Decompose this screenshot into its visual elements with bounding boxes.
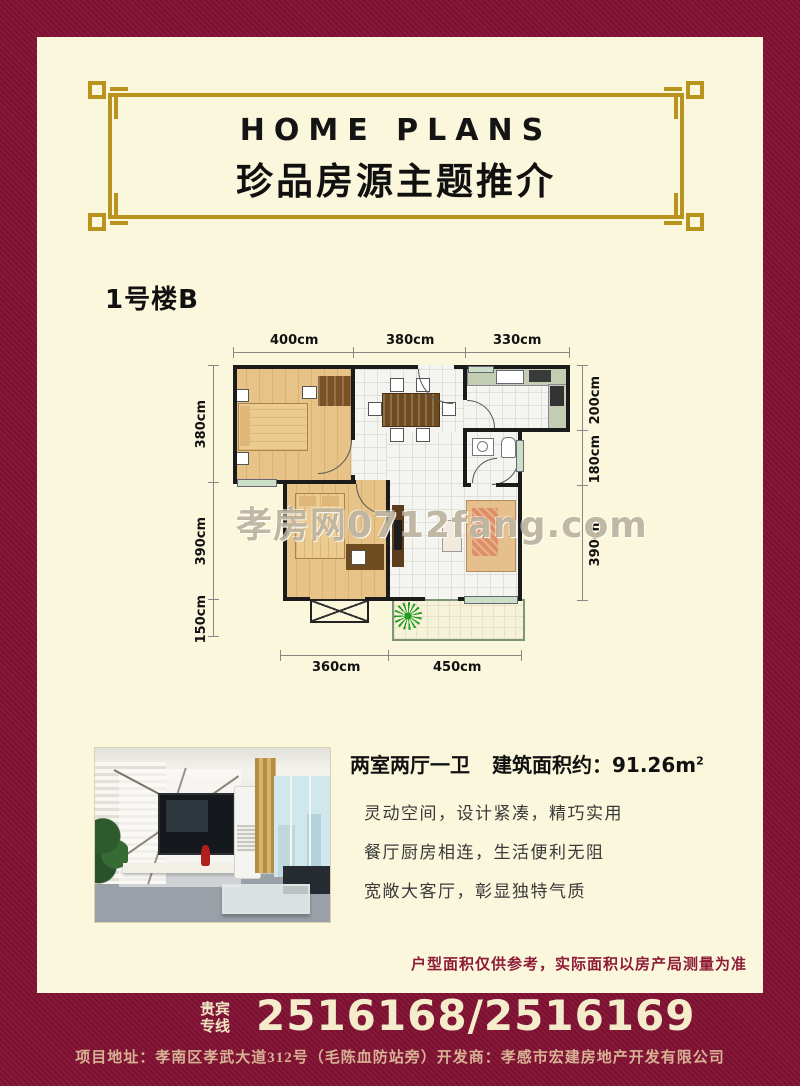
content-panel: HOME PLANS 珍品房源主题推介 1号楼B <box>37 37 763 993</box>
wall <box>351 365 355 440</box>
unit-description: 灵动空间，设计紧凑，精巧实用 餐厅厨房相连，生活便利无阻 宽敞大客厅，彰显独特气… <box>364 795 623 912</box>
wall <box>390 597 425 601</box>
hotline-numbers: 2516168/2516169 <box>256 991 695 1040</box>
interior-photo <box>95 748 330 922</box>
description-line: 宽敞大客厅，彰显独特气质 <box>364 873 623 912</box>
wall <box>496 483 522 487</box>
dim-label-top: 400cm <box>270 333 318 348</box>
photo-window-mullion <box>309 776 311 877</box>
dimension-tick <box>280 650 281 661</box>
dimension-tick <box>577 600 588 601</box>
chair-icon <box>390 378 404 392</box>
dimension-tick <box>569 347 570 358</box>
washbasin-icon <box>477 441 488 452</box>
dimension-line <box>280 655 522 656</box>
wall <box>233 365 418 369</box>
fridge-icon <box>550 386 564 406</box>
bay-window-icon <box>310 599 369 623</box>
description-line: 灵动空间，设计紧凑，精巧实用 <box>364 795 623 834</box>
footer-address: 项目地址：孝南区孝武大道312号（毛陈血防站旁）开发商：孝感市宏建房地产开发有限… <box>0 1046 800 1067</box>
dimension-tick <box>233 347 234 358</box>
wall <box>463 428 467 487</box>
sink-icon <box>496 370 524 384</box>
floor-plan: 400cm 380cm 330cm 380cm 390cm 150cm 200c… <box>196 330 626 682</box>
photo-ac-grill <box>237 825 256 853</box>
wall <box>463 365 467 400</box>
title-english: HOME PLANS <box>112 113 680 148</box>
dimension-tick <box>577 485 588 486</box>
dimension-tick <box>208 599 219 600</box>
chair-icon <box>416 428 430 442</box>
dimension-tick <box>208 365 219 366</box>
stove-icon <box>529 370 551 382</box>
chair-icon <box>442 402 456 416</box>
hotline-label-line: 贵宾 <box>200 1001 230 1018</box>
dimension-tick <box>577 430 588 431</box>
window-icon <box>237 479 277 487</box>
tv-stand-icon <box>302 386 317 399</box>
photo-window-mullion <box>290 776 292 877</box>
wall <box>365 597 390 601</box>
title-chinese: 珍品房源主题推介 <box>112 151 680 205</box>
dim-label-left: 380cm <box>194 400 209 448</box>
window-icon <box>468 366 494 373</box>
toilet-icon <box>501 437 516 458</box>
dimension-line <box>213 365 214 637</box>
wall <box>463 428 570 432</box>
dim-label-left: 390cm <box>194 517 209 565</box>
dimension-tick <box>521 650 522 661</box>
dimension-line <box>582 365 583 601</box>
wall <box>283 597 310 601</box>
window-icon <box>516 440 524 472</box>
dim-label-bottom: 360cm <box>312 660 360 675</box>
hotline-label-line: 专线 <box>200 1018 230 1035</box>
dining-table-icon <box>382 393 440 427</box>
photo-red-vase <box>201 845 210 866</box>
dim-label-right: 200cm <box>588 376 603 424</box>
nightstand-icon <box>236 452 249 465</box>
unit-summary: 两室两厅一卫建筑面积约：91.26m2 <box>350 749 704 778</box>
summary-rooms: 两室两厅一卫 <box>350 753 470 777</box>
chair-icon <box>351 550 366 565</box>
description-line: 餐厅厨房相连，生活便利无阻 <box>364 834 623 873</box>
dim-label-top: 380cm <box>386 333 434 348</box>
wardrobe-icon <box>318 376 352 406</box>
dimension-tick <box>465 347 466 358</box>
wall <box>463 483 471 487</box>
chair-icon <box>368 402 382 416</box>
watermark: 孝房网0712fang.com <box>236 496 648 548</box>
flyer-page: HOME PLANS 珍品房源主题推介 1号楼B <box>0 0 800 1086</box>
dim-label-right: 180cm <box>588 435 603 483</box>
hotline-label: 贵宾 专线 <box>200 1001 230 1035</box>
dimension-line <box>233 352 570 353</box>
chair-icon <box>390 428 404 442</box>
summary-area-value: 91.26m <box>612 753 696 777</box>
dimension-tick <box>577 365 588 366</box>
dimension-tick <box>353 347 354 358</box>
wall <box>233 365 237 484</box>
pillow-icon <box>240 406 250 446</box>
summary-area-superscript: 2 <box>696 754 704 767</box>
window-icon <box>464 596 518 604</box>
photo-tv-cabinet <box>123 863 241 873</box>
dim-label-top: 330cm <box>493 333 541 348</box>
disclaimer-text: 户型面积仅供参考，实际面积以房产局测量为准 <box>411 953 747 974</box>
nightstand-icon <box>236 389 249 402</box>
unit-label: 1号楼B <box>105 279 199 316</box>
dimension-tick <box>208 482 219 483</box>
photo-plant <box>95 814 128 887</box>
photo-tv-reflection <box>166 800 208 831</box>
plant-icon <box>394 602 422 630</box>
dim-label-left: 150cm <box>194 595 209 643</box>
summary-area-label: 建筑面积约： <box>492 753 612 777</box>
photo-coffee-table <box>222 884 311 914</box>
dimension-tick <box>388 650 389 661</box>
dim-label-bottom: 450cm <box>433 660 481 675</box>
title-frame: HOME PLANS 珍品房源主题推介 <box>108 93 684 219</box>
dimension-tick <box>208 636 219 637</box>
wall <box>566 365 570 432</box>
